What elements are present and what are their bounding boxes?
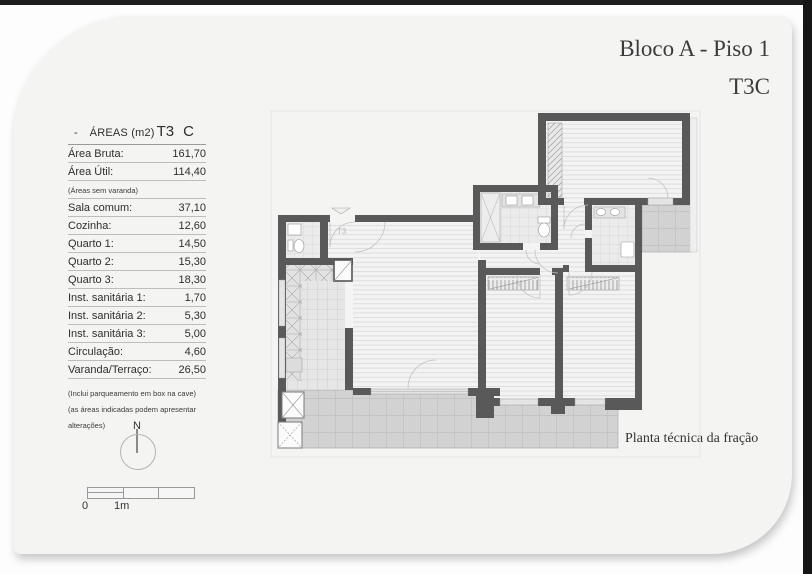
row-label: Circulação: [68, 346, 123, 358]
areas-variant: C [183, 123, 194, 140]
row-value: 5,00 [185, 328, 206, 340]
area-row: Área Bruta: 161,70 [68, 145, 206, 163]
scale-bar-tick [123, 488, 124, 498]
area-row: Área Útil: 114,40 [68, 163, 206, 181]
areas-table: - ÁREAS (m2) T3 C Área Bruta: 161,70 Áre… [68, 123, 206, 434]
right-edge-bar [803, 0, 812, 574]
entry-arrow-icon [332, 208, 350, 214]
row-value: 5,30 [185, 310, 206, 322]
area-row: Inst. sanitária 3: 5,00 [68, 325, 206, 343]
row-value: 14,50 [178, 238, 206, 250]
row-label: Quarto 2: [68, 256, 114, 268]
row-value: 15,30 [178, 256, 206, 268]
row-value: 161,70 [172, 148, 206, 160]
row-value: 12,60 [178, 220, 206, 232]
screen: Bloco A - Piso 1 T3C - ÁREAS (m2) T3 C Á… [0, 0, 812, 574]
area-row: Inst. sanitária 2: 5,30 [68, 307, 206, 325]
row-label: Sala comum: [68, 202, 132, 214]
row-label: Inst. sanitária 1: [68, 292, 146, 304]
row-label: Cozinha: [68, 220, 111, 232]
area-row: Inst. sanitária 1: 1,70 [68, 289, 206, 307]
areas-header-label: ÁREAS (m2) [90, 127, 155, 139]
row-value: 4,60 [185, 346, 206, 358]
area-row: Quarto 3: 18,30 [68, 271, 206, 289]
areas-type: T3 [157, 123, 175, 140]
scale-bar-subdivision [88, 492, 123, 493]
scale-bar [87, 487, 195, 499]
north-indicator-icon [120, 434, 156, 470]
row-label: Inst. sanitária 2: [68, 310, 146, 322]
floor-label-t3: T3 [337, 227, 347, 236]
top-edge-bar [0, 0, 812, 5]
plan-title: Bloco A - Piso 1 [619, 36, 770, 62]
scale-bar-tick [158, 488, 159, 498]
row-value: 18,30 [178, 274, 206, 286]
row-label: Varanda/Terraço: [68, 364, 152, 376]
row-value: 1,70 [185, 292, 206, 304]
row-label: Área Bruta: [68, 148, 124, 160]
area-row: Sala comum: 37,10 [68, 199, 206, 217]
row-label: Quarto 3: [68, 274, 114, 286]
floor-plan-svg: T3 [268, 110, 708, 460]
areas-dash: - [74, 127, 78, 139]
area-row: Quarto 2: 15,30 [68, 253, 206, 271]
area-row: Cozinha: 12,60 [68, 217, 206, 235]
areas-header: - ÁREAS (m2) T3 C [68, 123, 206, 145]
note-sem-varanda: (Áreas sem varanda) [68, 181, 206, 199]
row-label: Área Útil: [68, 166, 113, 178]
row-value: 37,10 [178, 202, 206, 214]
scale-label-0: 0 [82, 500, 88, 512]
scale-label-1m: 1m [114, 500, 129, 512]
area-row: Varanda/Terraço: 26,50 [68, 361, 206, 379]
area-row: Circulação: 4,60 [68, 343, 206, 361]
row-label: Quarto 1: [68, 238, 114, 250]
row-label: Inst. sanitária 3: [68, 328, 146, 340]
plan-subtitle: T3C [619, 74, 770, 100]
title-block: Bloco A - Piso 1 T3C [619, 36, 770, 100]
row-value: 26,50 [178, 364, 206, 376]
row-value: 114,40 [173, 166, 206, 178]
bottom-note-1: (Inclui parqueamento em box na cave) [68, 386, 206, 402]
area-row: Quarto 1: 14,50 [68, 235, 206, 253]
